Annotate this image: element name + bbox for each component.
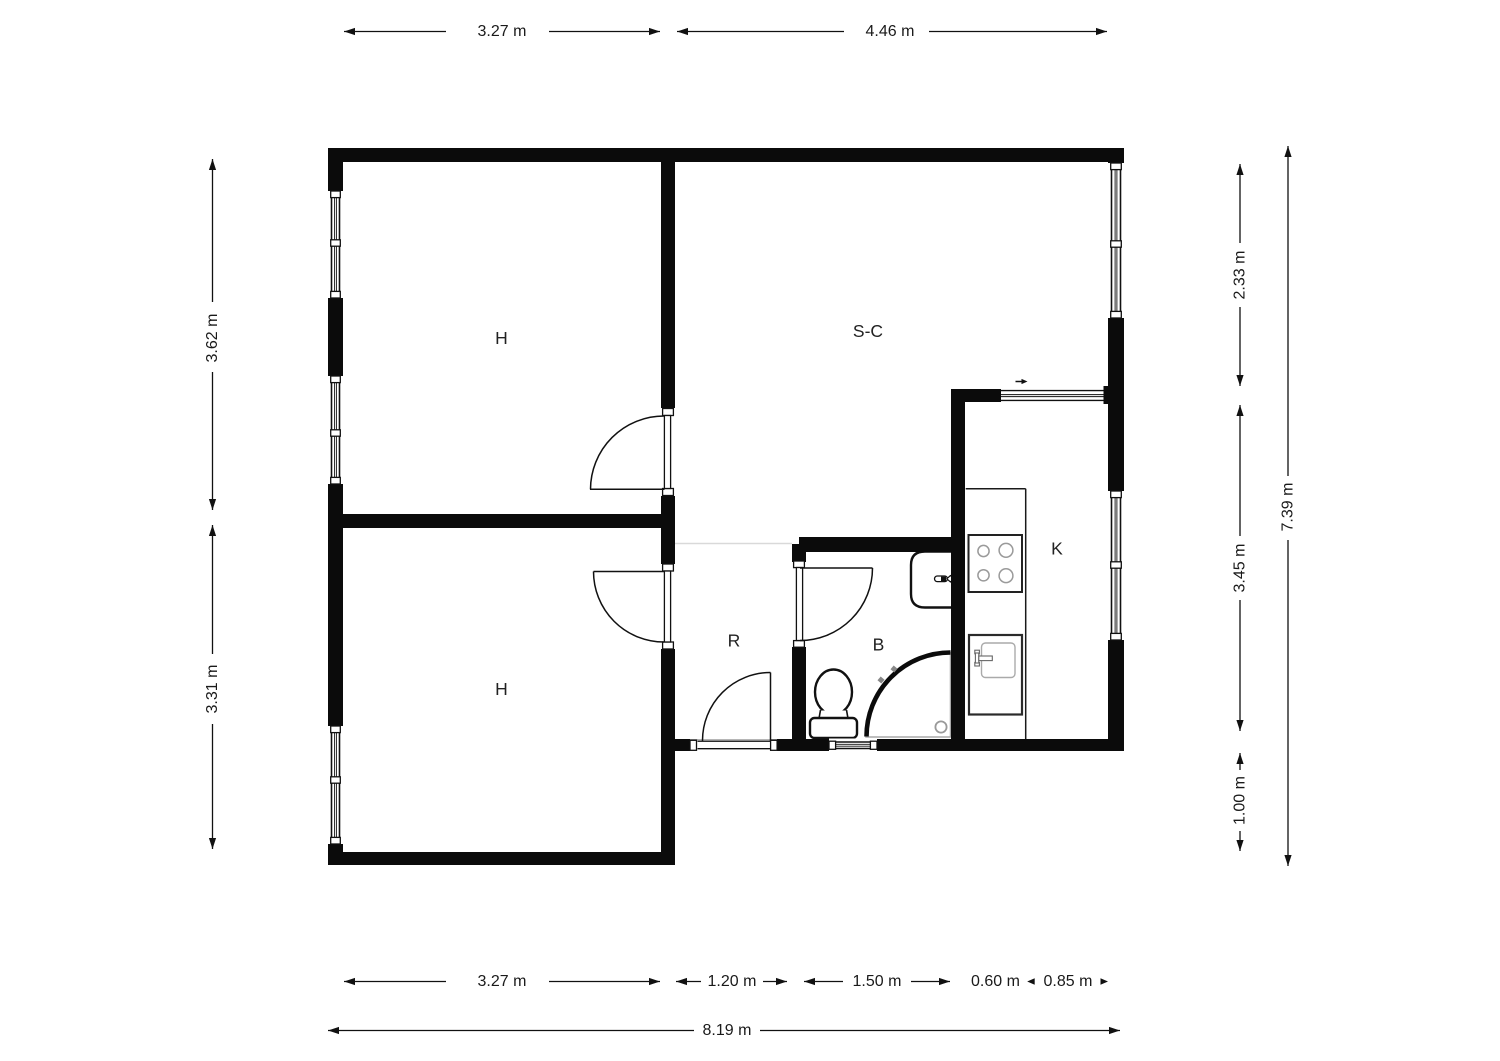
svg-text:7.39 m: 7.39 m: [1280, 483, 1297, 532]
svg-text:8.19 m: 8.19 m: [703, 1022, 752, 1039]
svg-text:3.62 m: 3.62 m: [204, 314, 221, 363]
svg-text:1.20 m: 1.20 m: [708, 973, 757, 990]
svg-text:3.27 m: 3.27 m: [478, 23, 527, 40]
svg-text:R: R: [728, 631, 741, 651]
svg-text:0.85 m: 0.85 m: [1044, 973, 1093, 990]
svg-text:2.33 m: 2.33 m: [1232, 251, 1249, 300]
svg-text:B: B: [873, 635, 885, 655]
svg-text:1.00 m: 1.00 m: [1232, 776, 1249, 825]
svg-text:K: K: [1051, 539, 1063, 559]
svg-text:0.60 m: 0.60 m: [971, 973, 1020, 990]
svg-text:3.45 m: 3.45 m: [1232, 544, 1249, 593]
svg-text:H: H: [495, 328, 508, 348]
svg-text:4.46 m: 4.46 m: [866, 23, 915, 40]
svg-text:S-C: S-C: [853, 321, 883, 341]
svg-text:3.27 m: 3.27 m: [478, 973, 527, 990]
svg-text:H: H: [495, 679, 508, 699]
svg-text:1.50 m: 1.50 m: [853, 973, 902, 990]
svg-text:3.31 m: 3.31 m: [204, 665, 221, 714]
